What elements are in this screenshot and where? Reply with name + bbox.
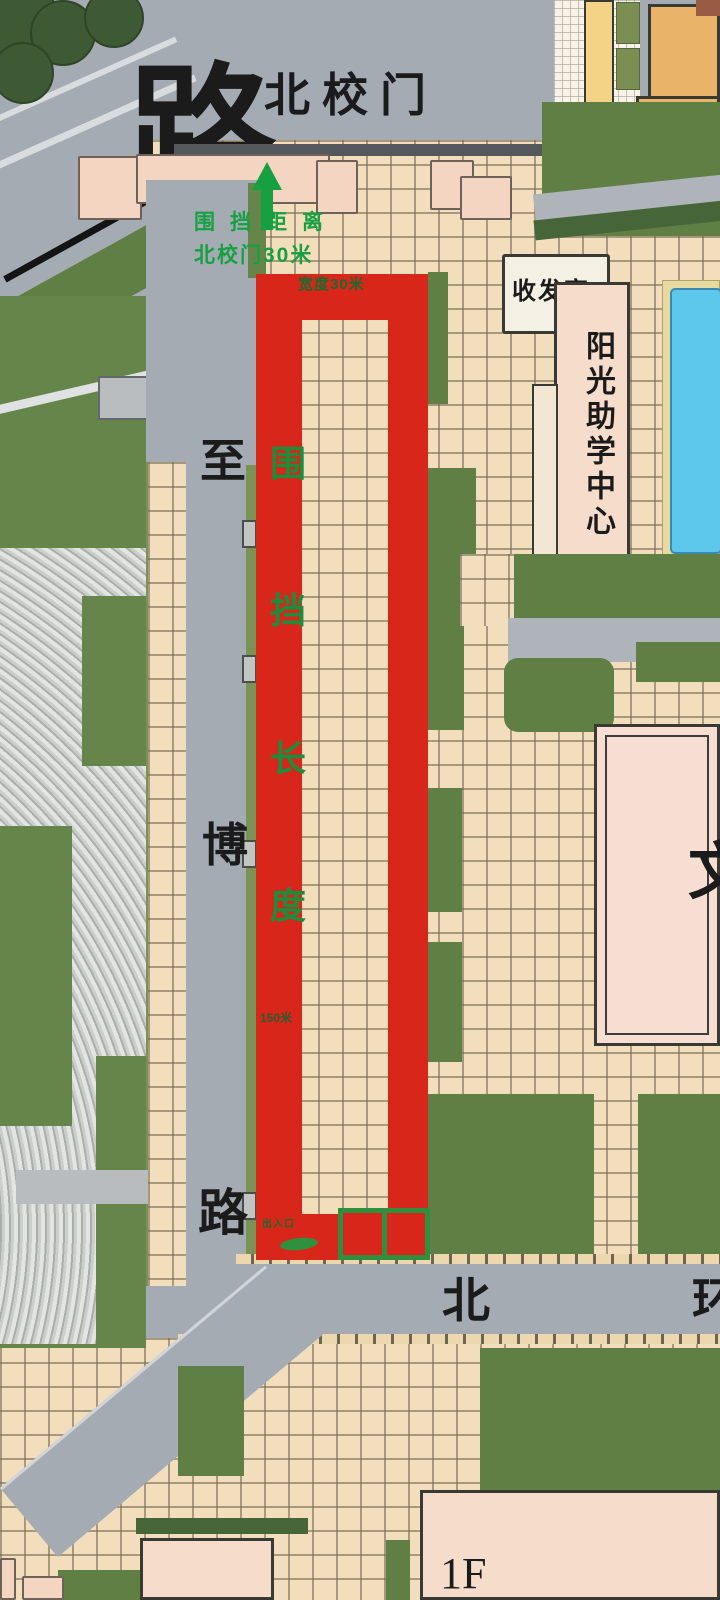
- zhibo-road-label-lu: 路: [198, 1188, 248, 1238]
- green-patch: [428, 788, 462, 912]
- wen-building-label: 文: [688, 842, 720, 904]
- distance-note-line1: 围挡距离: [194, 212, 338, 233]
- fence-gate-cell: [343, 1213, 382, 1255]
- fence-outline-right: [388, 274, 428, 1260]
- olive-block: [616, 2, 640, 44]
- aid-center-label: 阳光助学中心: [572, 330, 612, 560]
- green-patch: [428, 626, 464, 730]
- small-building: [0, 1558, 16, 1600]
- green-patch: [58, 1570, 140, 1600]
- fence-gate-marker: [338, 1208, 430, 1260]
- fence-width-note: 宽度30米: [298, 277, 365, 292]
- road-post: [242, 520, 257, 548]
- small-building: [22, 1576, 64, 1600]
- fence-char: 挡: [270, 593, 306, 629]
- ring-road-label-bei: 北: [442, 1278, 490, 1326]
- fence-char: 长: [270, 741, 306, 777]
- olive-block: [616, 48, 640, 90]
- green-rounded: [504, 658, 614, 732]
- stadium-lawn-wedge: [0, 826, 72, 1126]
- orange-building: [648, 4, 720, 102]
- green-patch: [428, 272, 448, 404]
- green-patch: [428, 468, 476, 560]
- swimming-pool: [670, 288, 720, 554]
- fence-char: 围: [270, 446, 306, 482]
- distance-note-line2: 北校门30米: [194, 245, 313, 266]
- southeast-lawn: [428, 1094, 594, 1264]
- hedge-row: [136, 1518, 308, 1534]
- fence-gate-cell: [387, 1213, 426, 1255]
- fence-char: 度: [270, 888, 306, 924]
- zhibo-road-label-zhi: 至: [200, 438, 246, 484]
- brown-block: [696, 0, 720, 16]
- green-patch: [428, 942, 462, 1062]
- gate-pillar: [316, 160, 358, 214]
- green-wedge: [178, 1366, 244, 1476]
- ring-road-label-huan: 环: [692, 1278, 720, 1326]
- small-gray-building: [98, 376, 150, 420]
- south-building: [140, 1538, 274, 1600]
- fence-name-column: 围 挡 长 度: [266, 446, 310, 924]
- south-lawn: [480, 1348, 720, 1494]
- floor-label: 1F: [440, 1552, 486, 1596]
- green-patch: [636, 642, 720, 682]
- zhibo-road-label-bo: 博: [202, 822, 248, 868]
- southeast-lawn: [638, 1094, 720, 1264]
- gate-building-left: [78, 156, 142, 220]
- stands-cross-path: [16, 1170, 148, 1204]
- aid-center-annex: [532, 384, 558, 574]
- tile-path: [460, 554, 514, 626]
- roadside-walk-tiles: [144, 462, 186, 1286]
- fence-gate-note: 出入口: [262, 1220, 295, 1230]
- stadium-lawn-wedge: [82, 596, 146, 766]
- road-post: [242, 655, 257, 683]
- gate-pillar-east: [460, 176, 512, 220]
- campus-map: 路 北校门 收发室 阳光助学中心: [0, 0, 720, 1600]
- fence-length-note: 150米: [260, 1012, 292, 1024]
- up-arrow-icon: [252, 162, 282, 190]
- green-sliver: [386, 1540, 410, 1600]
- north-gate-label: 北校门: [264, 72, 438, 118]
